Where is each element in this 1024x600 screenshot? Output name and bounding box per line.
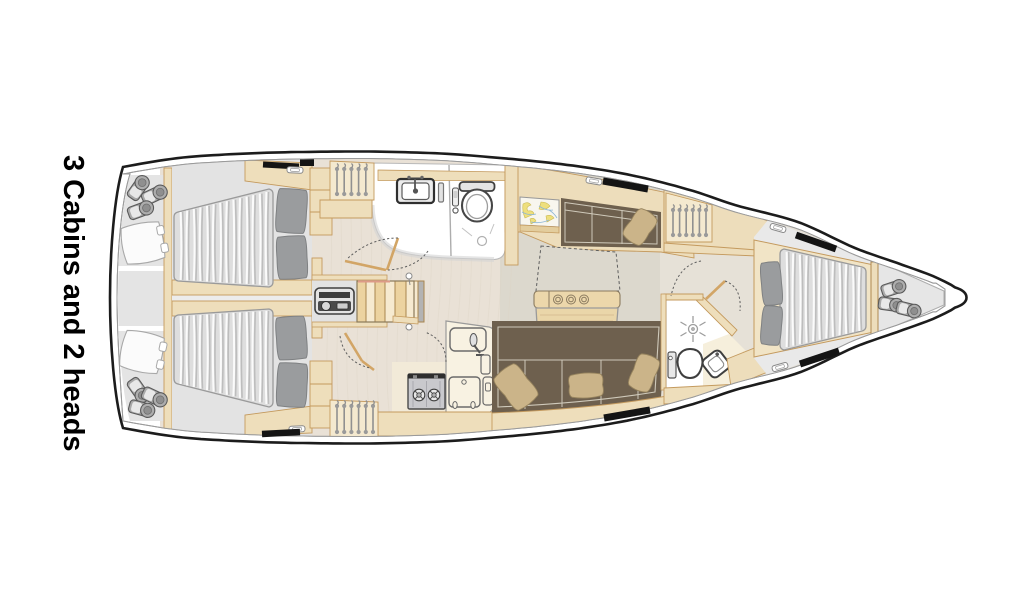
svg-text:3 Cabins and 2 heads: 3 Cabins and 2 heads — [57, 155, 89, 452]
